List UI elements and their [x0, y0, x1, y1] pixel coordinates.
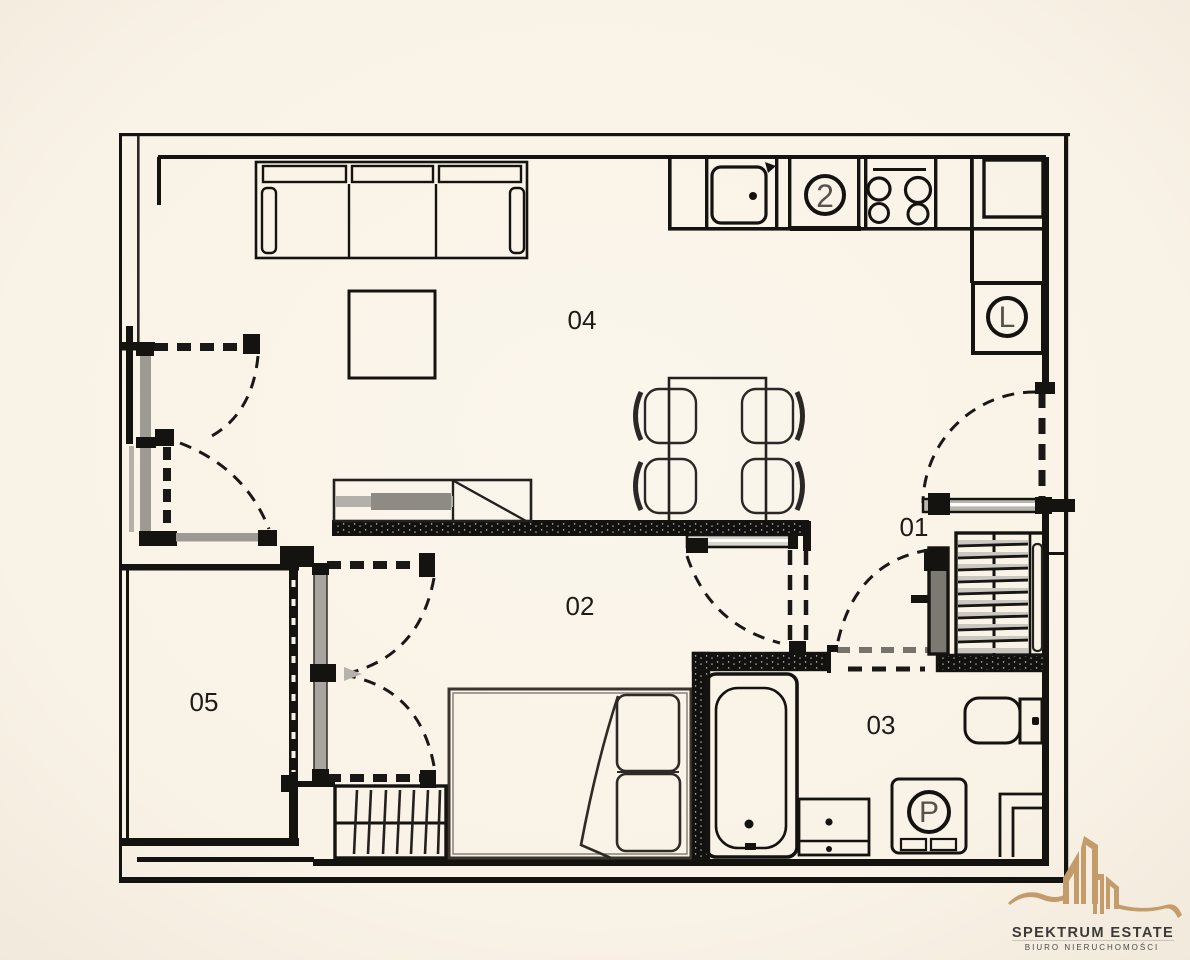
- svg-text:2: 2: [816, 178, 834, 214]
- svg-text:L: L: [999, 301, 1016, 334]
- svg-text:P: P: [919, 796, 939, 829]
- svg-text:SPEKTRUM ESTATE: SPEKTRUM ESTATE: [1012, 925, 1174, 941]
- svg-text:03: 03: [867, 710, 896, 740]
- svg-text:01: 01: [900, 512, 929, 542]
- svg-text:04: 04: [568, 305, 597, 335]
- svg-text:BIURO NIERUCHOMOŚCI: BIURO NIERUCHOMOŚCI: [1025, 943, 1159, 952]
- svg-text:05: 05: [190, 687, 219, 717]
- svg-text:02: 02: [566, 591, 595, 621]
